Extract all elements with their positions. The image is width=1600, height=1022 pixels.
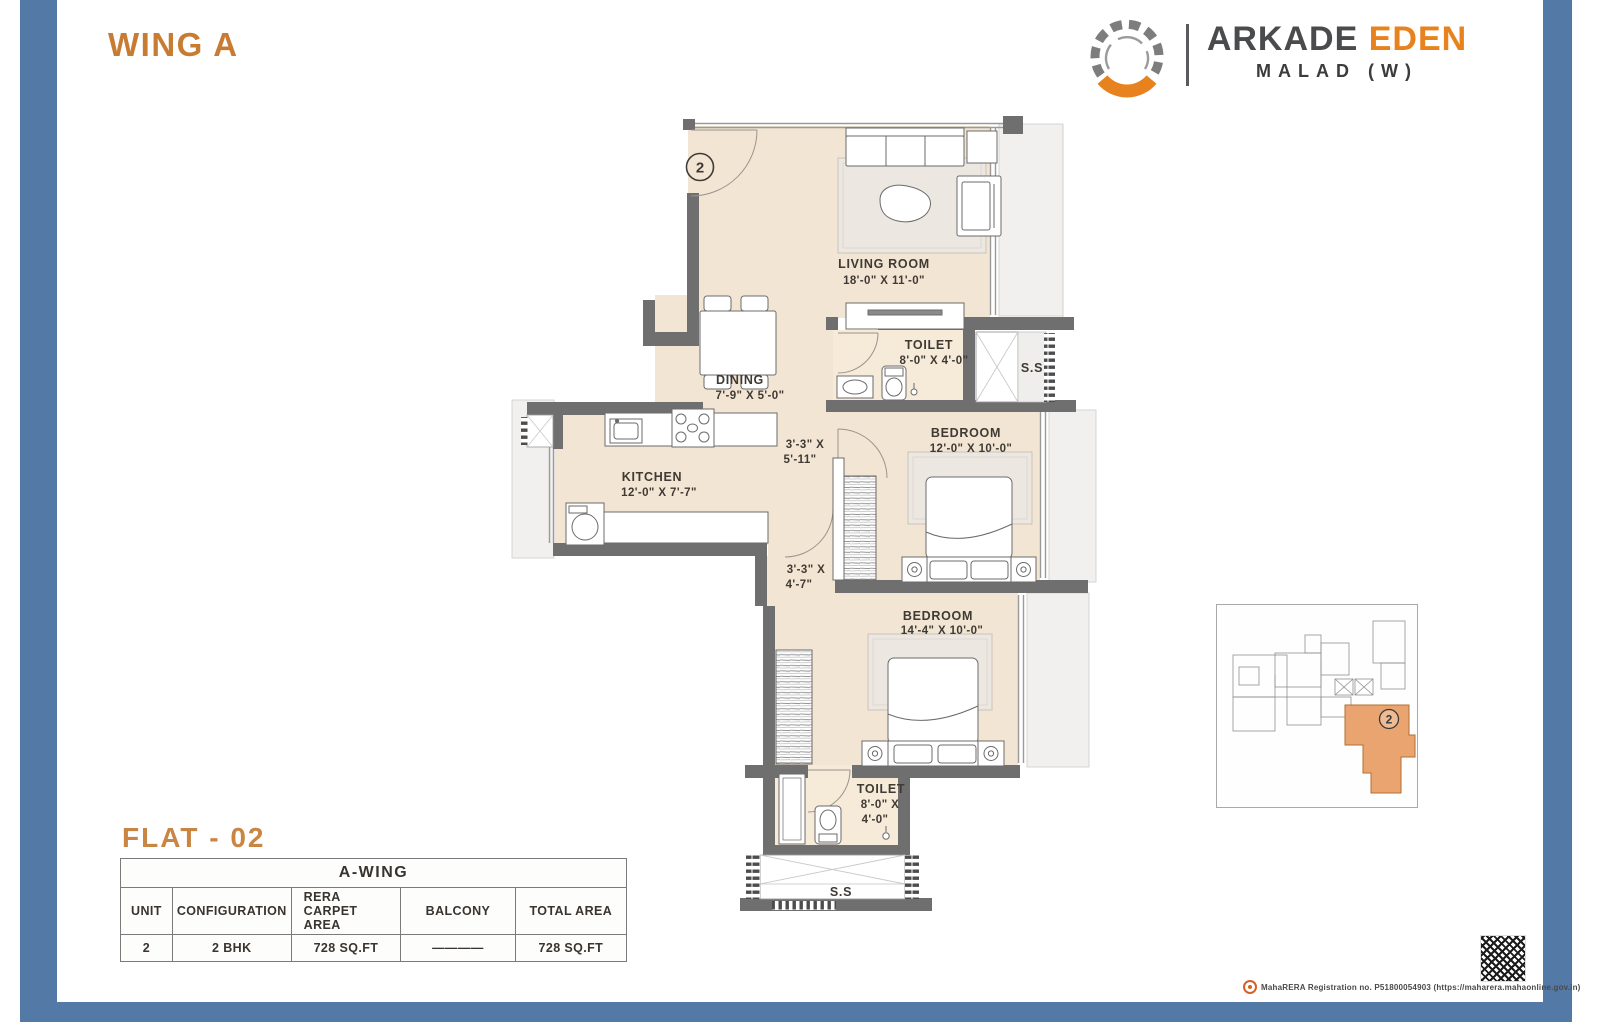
cell-configuration: 2 BHK bbox=[172, 935, 291, 962]
pillow-icon bbox=[894, 745, 932, 763]
kitchen-counter-bottom bbox=[604, 512, 768, 543]
rera-footer: MahaRERA Registration no. P51800054903 (… bbox=[1243, 980, 1581, 994]
entry-unit-marker-label: 2 bbox=[696, 160, 704, 177]
brand-name-primary: ARKADE bbox=[1207, 20, 1358, 58]
pillow-icon bbox=[930, 561, 967, 579]
shaft-bottom-label: S.S bbox=[830, 885, 852, 899]
kitchen-dims: 12'-0" X 7'-7" bbox=[621, 487, 697, 499]
flat-title: FLAT - 02 bbox=[122, 822, 265, 854]
toilet-bottom-dims-2: 4'-0" bbox=[862, 814, 889, 826]
cell-rera-carpet-area: 728 SQ.FT bbox=[291, 935, 401, 962]
keyplan-svg: 2 bbox=[1217, 605, 1417, 807]
cell-balcony: ———— bbox=[401, 935, 516, 962]
kitchen-duct-hatch bbox=[521, 417, 528, 445]
col-header-configuration: CONFIGURATION bbox=[172, 888, 291, 935]
bedroom-mid-dims: 12'-0" X 10'-0" bbox=[930, 443, 1012, 455]
living-room-label: LIVING ROOM bbox=[838, 257, 930, 271]
frame-left-bar bbox=[20, 0, 57, 1022]
table-header-row: UNIT CONFIGURATION RERA CARPET AREA BALC… bbox=[121, 888, 627, 935]
wardrobe-panel bbox=[833, 458, 844, 580]
bedroom-bottom-dims: 14'-4" X 10'-0" bbox=[901, 625, 983, 637]
wardrobe-icon bbox=[776, 650, 812, 764]
keyplan-unit-marker: 2 bbox=[1380, 710, 1399, 729]
passage-lower-dims-2: 4'-7" bbox=[786, 579, 813, 591]
dining-table-icon bbox=[700, 311, 776, 375]
sofa-back bbox=[846, 128, 964, 136]
table-title: A-WING bbox=[121, 859, 627, 888]
cell-total-area: 728 SQ.FT bbox=[515, 935, 626, 962]
toilet-bottom-dims-1: 8'-0" X bbox=[861, 799, 899, 811]
service-shaft-top bbox=[976, 332, 1055, 402]
table-title-row: A-WING bbox=[121, 859, 627, 888]
maharera-icon bbox=[1243, 980, 1257, 994]
rera-registration-text: MahaRERA Registration no. P51800054903 (… bbox=[1261, 983, 1581, 992]
tv-unit-icon bbox=[846, 303, 964, 329]
sofa-icon bbox=[846, 136, 964, 166]
col-header-total-area: TOTAL AREA bbox=[515, 888, 626, 935]
floor-plan-svg: 2 LIVING ROOM 18'-0" X 11'-0" TOILET 8'-… bbox=[480, 100, 1130, 915]
side-table-icon bbox=[967, 131, 997, 163]
page: WING A ARKADE EDEN MALAD (W) bbox=[0, 0, 1600, 1022]
living-room-dims: 18'-0" X 11'-0" bbox=[843, 275, 925, 287]
toilet-top-label: TOILET bbox=[905, 338, 953, 352]
tap-icon bbox=[911, 389, 917, 395]
col-header-balcony: BALCONY bbox=[401, 888, 516, 935]
bedroom-bottom-label: BEDROOM bbox=[903, 609, 973, 623]
wardrobe-icon bbox=[844, 476, 876, 580]
wing-title: WING A bbox=[108, 26, 239, 64]
pillow-icon bbox=[971, 561, 1008, 579]
passage-upper-dims-1: 3'-3" X bbox=[786, 439, 824, 451]
brand-divider bbox=[1186, 24, 1189, 86]
brand-logo-icon bbox=[1072, 14, 1182, 104]
kitchen-label: KITCHEN bbox=[622, 470, 682, 484]
col-header-rera-carpet-area: RERA CARPET AREA bbox=[291, 888, 401, 935]
pillow-icon bbox=[938, 745, 976, 763]
brand-location: MALAD (W) bbox=[1202, 61, 1472, 82]
dining-dims: 7'-9" X 5'-0" bbox=[716, 390, 785, 402]
bedroom-bottom-furniture bbox=[776, 650, 1004, 766]
tap-icon bbox=[883, 833, 889, 839]
bedroom-mid-label: BEDROOM bbox=[931, 426, 1001, 440]
brand-name: ARKADE EDEN bbox=[1202, 20, 1472, 59]
unit-details-table: A-WING UNIT CONFIGURATION RERA CARPET AR… bbox=[120, 858, 627, 962]
frame-right-bar bbox=[1543, 0, 1572, 1022]
bedroom-mid-furniture bbox=[833, 458, 1036, 582]
dining-chair-icon bbox=[704, 296, 731, 311]
qr-code bbox=[1481, 936, 1525, 981]
passage-lower-dims-1: 3'-3" X bbox=[787, 564, 825, 576]
passage-upper-dims-2: 5'-11" bbox=[784, 454, 817, 466]
shaft-top-label: S.S bbox=[1021, 361, 1043, 375]
bed-icon bbox=[926, 477, 1012, 559]
cell-unit: 2 bbox=[121, 935, 173, 962]
col-header-unit: UNIT bbox=[121, 888, 173, 935]
keyplan-unit-marker-label: 2 bbox=[1386, 713, 1393, 727]
toilet-top-dims: 8'-0" X 4'-0" bbox=[900, 355, 969, 367]
table-data-row: 2 2 BHK 728 SQ.FT ———— 728 SQ.FT bbox=[121, 935, 627, 962]
frame-bottom-bar bbox=[20, 1002, 1572, 1022]
dining-label: DINING bbox=[716, 373, 764, 387]
dining-chair-icon bbox=[741, 296, 768, 311]
brand-text: ARKADE EDEN MALAD (W) bbox=[1202, 20, 1472, 82]
bed-icon bbox=[888, 658, 978, 744]
brand-name-secondary: EDEN bbox=[1369, 20, 1467, 58]
keyplan-box: 2 bbox=[1216, 604, 1418, 808]
toilet-bottom-label: TOILET bbox=[857, 782, 905, 796]
